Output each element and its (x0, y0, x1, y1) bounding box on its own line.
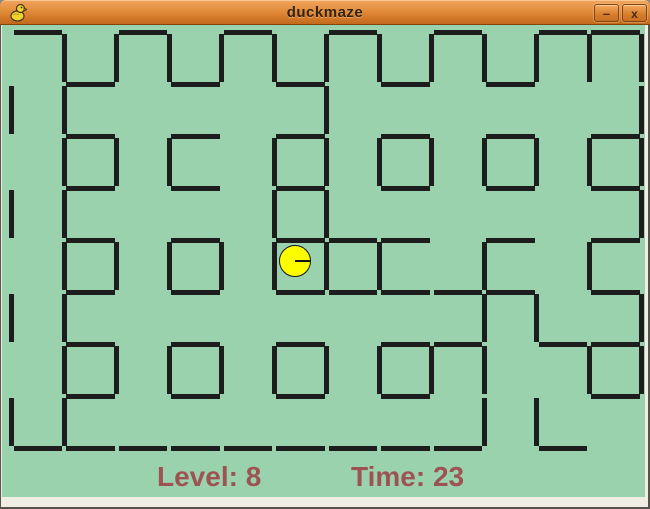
maze-wall (66, 82, 115, 87)
time-status: Time: 23 (351, 461, 464, 493)
maze-wall (486, 186, 535, 191)
maze-wall (62, 138, 67, 186)
maze-wall (119, 30, 168, 35)
maze-wall (62, 346, 67, 394)
maze-wall (14, 446, 63, 451)
maze-wall (539, 342, 588, 347)
maze-wall (167, 242, 172, 290)
maze-wall (14, 30, 63, 35)
maze-wall (591, 186, 640, 191)
maze-wall (171, 82, 220, 87)
maze-wall (276, 446, 325, 451)
maze-wall (639, 86, 644, 134)
maze-wall (9, 294, 14, 342)
maze-wall (324, 34, 329, 82)
maze-wall (62, 86, 67, 134)
maze-wall (329, 446, 378, 451)
maze-wall (381, 446, 430, 451)
maze-wall (434, 446, 483, 451)
maze-wall (639, 190, 644, 238)
maze-wall (381, 394, 430, 399)
maze-wall (272, 34, 277, 82)
maze-wall (639, 294, 644, 342)
maze-wall (171, 394, 220, 399)
maze-wall (639, 346, 644, 394)
maze-wall (377, 242, 382, 290)
maze-wall (329, 30, 378, 35)
maze-wall (66, 290, 115, 295)
maze-wall (62, 294, 67, 342)
maze-wall (272, 346, 277, 394)
maze-wall (9, 398, 14, 446)
maze-wall (539, 30, 588, 35)
maze-wall (587, 242, 592, 290)
maze-wall (534, 138, 539, 186)
maze-wall (171, 186, 220, 191)
maze-wall (66, 186, 115, 191)
maze-wall (219, 346, 224, 394)
maze-wall (587, 34, 592, 82)
maze-wall (429, 34, 434, 82)
maze-wall (171, 342, 220, 347)
maze-wall (591, 342, 640, 347)
maze-wall (429, 138, 434, 186)
maze-wall (534, 294, 539, 342)
maze-wall (377, 138, 382, 186)
maze-wall (324, 190, 329, 238)
maze-wall (224, 446, 273, 451)
maze-wall (224, 30, 273, 35)
maze-wall (9, 190, 14, 238)
maze-wall (66, 394, 115, 399)
maze-wall (482, 398, 487, 446)
maze-wall (381, 134, 430, 139)
maze-wall (486, 238, 535, 243)
maze-wall (171, 446, 220, 451)
maze-wall (276, 82, 325, 87)
maze-wall (114, 242, 119, 290)
maze-wall (66, 134, 115, 139)
maze-wall (324, 138, 329, 186)
maze-wall (219, 242, 224, 290)
close-button[interactable]: x (622, 4, 647, 22)
maze-wall (329, 238, 378, 243)
maze-wall (482, 138, 487, 186)
maze-wall (329, 290, 378, 295)
maze-area[interactable] (0, 0, 650, 497)
maze-wall (276, 290, 325, 295)
maze-wall (482, 34, 487, 82)
maze-wall (272, 190, 277, 238)
maze-wall (381, 238, 430, 243)
maze-wall (62, 398, 67, 446)
maze-wall (276, 186, 325, 191)
maze-wall (276, 238, 325, 243)
maze-wall (114, 34, 119, 82)
maze-wall (377, 346, 382, 394)
maze-wall (639, 138, 644, 186)
maze-wall (324, 242, 329, 290)
maze-wall (381, 186, 430, 191)
maze-wall (276, 342, 325, 347)
minimize-icon: – (595, 6, 618, 22)
maze-wall (381, 82, 430, 87)
maze-wall (114, 346, 119, 394)
maze-wall (167, 346, 172, 394)
maze-wall (66, 238, 115, 243)
maze-wall (591, 134, 640, 139)
maze-wall (591, 394, 640, 399)
level-status: Level: 8 (157, 461, 261, 493)
maze-wall (272, 242, 277, 290)
maze-wall (486, 134, 535, 139)
titlebar[interactable]: duckmaze – x (0, 0, 650, 25)
maze-wall (167, 138, 172, 186)
maze-wall (591, 238, 640, 243)
maze-wall (381, 290, 430, 295)
duckmaze-window: Level: 8 Time: 23 duckmaze – x (0, 0, 650, 509)
maze-wall (539, 446, 588, 451)
maze-wall (377, 34, 382, 82)
maze-wall (429, 346, 434, 394)
maze-wall (434, 342, 483, 347)
maze-wall (534, 398, 539, 446)
maze-wall (276, 394, 325, 399)
maze-wall (219, 34, 224, 82)
maze-wall (66, 446, 115, 451)
maze-wall (639, 34, 644, 82)
maze-wall (62, 190, 67, 238)
duck-direction-line (295, 260, 310, 262)
minimize-button[interactable]: – (594, 4, 619, 22)
maze-wall (587, 138, 592, 186)
maze-wall (171, 290, 220, 295)
maze-wall (381, 342, 430, 347)
close-icon: x (623, 6, 646, 22)
maze-wall (62, 242, 67, 290)
maze-wall (486, 290, 535, 295)
maze-wall (171, 238, 220, 243)
maze-wall (482, 294, 487, 342)
maze-wall (9, 86, 14, 134)
maze-wall (276, 134, 325, 139)
maze-wall (272, 138, 277, 186)
maze-wall (587, 346, 592, 394)
maze-wall (534, 34, 539, 82)
maze-wall (119, 446, 168, 451)
window-title: duckmaze (0, 4, 650, 21)
maze-wall (66, 342, 115, 347)
maze-wall (482, 346, 487, 394)
maze-wall (434, 290, 483, 295)
maze-wall (591, 30, 640, 35)
maze-wall (486, 82, 535, 87)
maze-wall (324, 86, 329, 134)
maze-wall (434, 30, 483, 35)
maze-wall (591, 290, 640, 295)
maze-wall (171, 134, 220, 139)
maze-wall (482, 242, 487, 290)
maze-wall (62, 34, 67, 82)
maze-wall (114, 138, 119, 186)
maze-wall (167, 34, 172, 82)
maze-wall (324, 346, 329, 394)
